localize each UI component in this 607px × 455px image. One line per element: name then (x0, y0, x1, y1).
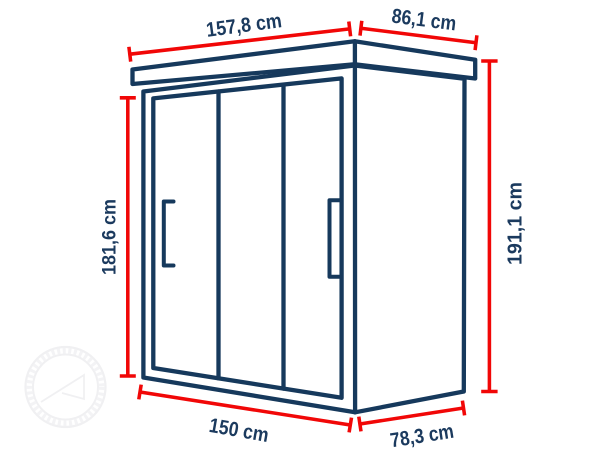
svg-text:181,6 cm: 181,6 cm (99, 199, 121, 275)
svg-text:78,3 cm: 78,3 cm (389, 420, 456, 453)
svg-text:86,1 cm: 86,1 cm (390, 5, 457, 36)
svg-text:191,1 cm: 191,1 cm (504, 182, 527, 265)
svg-text:150 cm: 150 cm (207, 414, 270, 447)
